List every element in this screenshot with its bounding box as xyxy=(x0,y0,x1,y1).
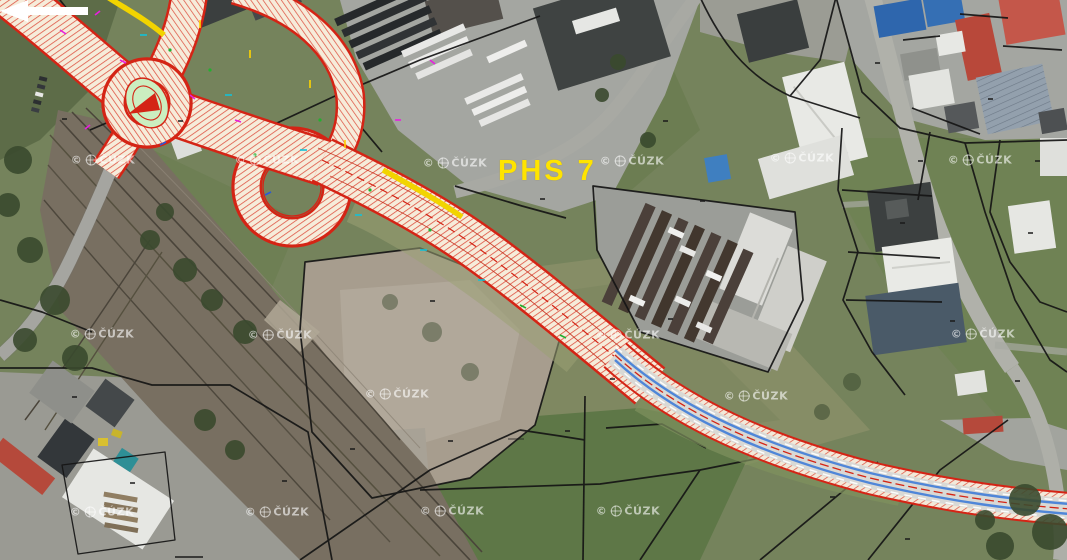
phs7-arrow-icon xyxy=(0,0,88,22)
phs7-label: PHS 7 xyxy=(498,157,597,186)
roundabout xyxy=(102,58,192,148)
phs7-label-text: PHS 7 xyxy=(498,155,597,187)
map-viewport: © ČÚZK © ČÚZK © ČÚZK © ČÚZK © ČÚZK © ČÚZ… xyxy=(0,0,1067,560)
aerial-map xyxy=(0,0,1067,560)
